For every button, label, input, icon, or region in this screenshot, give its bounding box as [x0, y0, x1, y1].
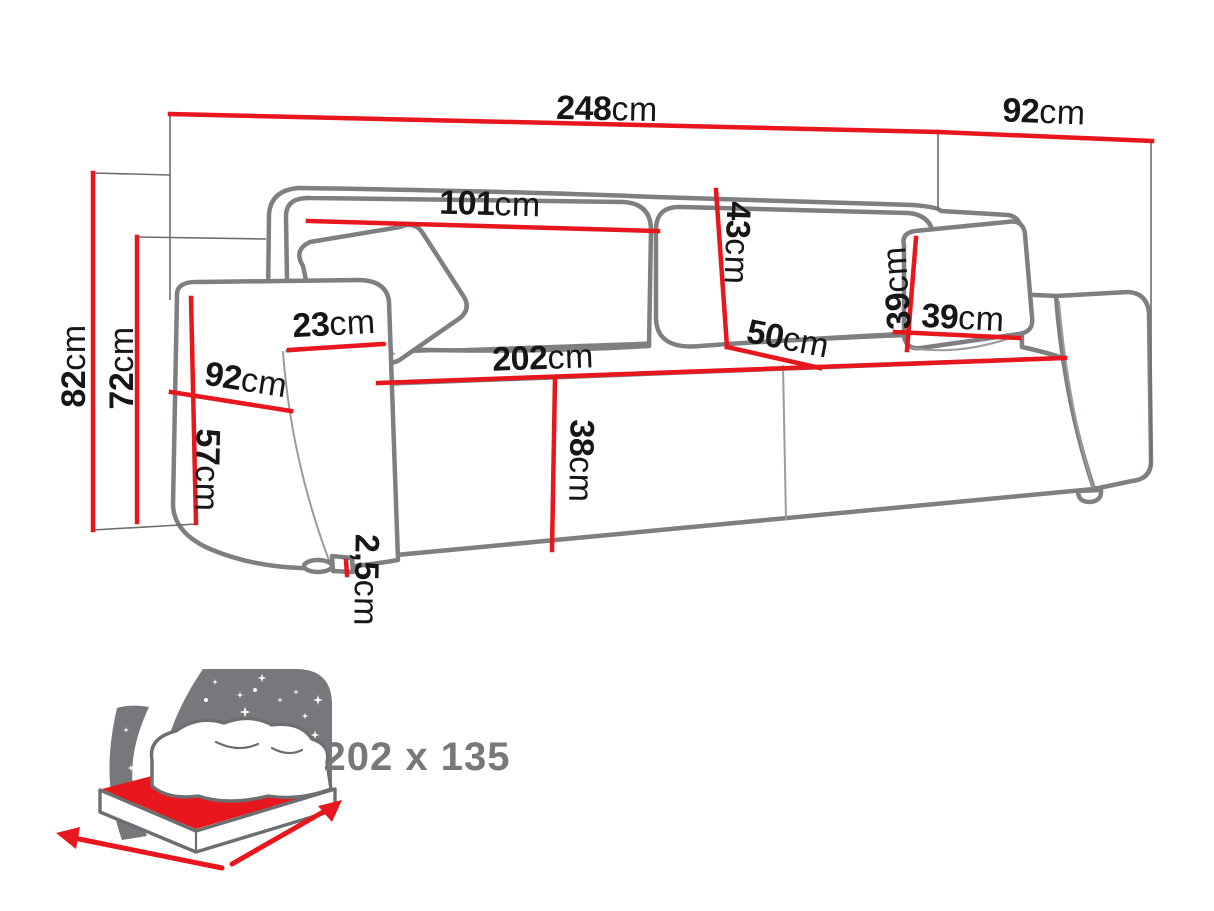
- dim-label-armrest-top-width: 23cm: [292, 305, 377, 343]
- line-total-width: [170, 114, 938, 132]
- sofa-dimension-diagram: 248cm 92cm 101cm 43cm 23cm 92cm 202cm 50…: [0, 0, 1214, 911]
- blanket: [152, 718, 332, 801]
- diagram-canvas: [0, 0, 1214, 911]
- dim-label-leg-height: 2,5cm: [348, 534, 384, 627]
- dim-label-seat-height: 38cm: [563, 419, 598, 503]
- dim-label-seat-width: 202cm: [492, 339, 595, 377]
- dim-label-backrest-height: 43cm: [719, 201, 756, 285]
- sleeping-area-label: 202 x 135: [324, 737, 511, 777]
- dim-label-backrest-width: 101cm: [439, 186, 541, 223]
- sleeping-function-icon: [56, 669, 342, 868]
- dim-label-cushion-height: 39cm: [877, 245, 917, 330]
- front-left-leg: [304, 560, 332, 572]
- dim-label-backrest-top-height: 72cm: [105, 326, 139, 409]
- dim-label-total-width: 248cm: [556, 91, 658, 127]
- dim-label-cushion-width: 39cm: [921, 299, 1006, 337]
- dim-label-total-height: 82cm: [57, 324, 91, 407]
- sofa-line-art: [173, 188, 1151, 572]
- line-seat-height: [552, 378, 555, 550]
- dim-label-total-depth: 92cm: [1002, 93, 1086, 130]
- line-total-depth: [938, 132, 1152, 141]
- seat-front-panel: [280, 358, 1094, 566]
- dim-label-armrest-height: 57cm: [189, 428, 224, 512]
- front-right-leg: [1078, 490, 1101, 502]
